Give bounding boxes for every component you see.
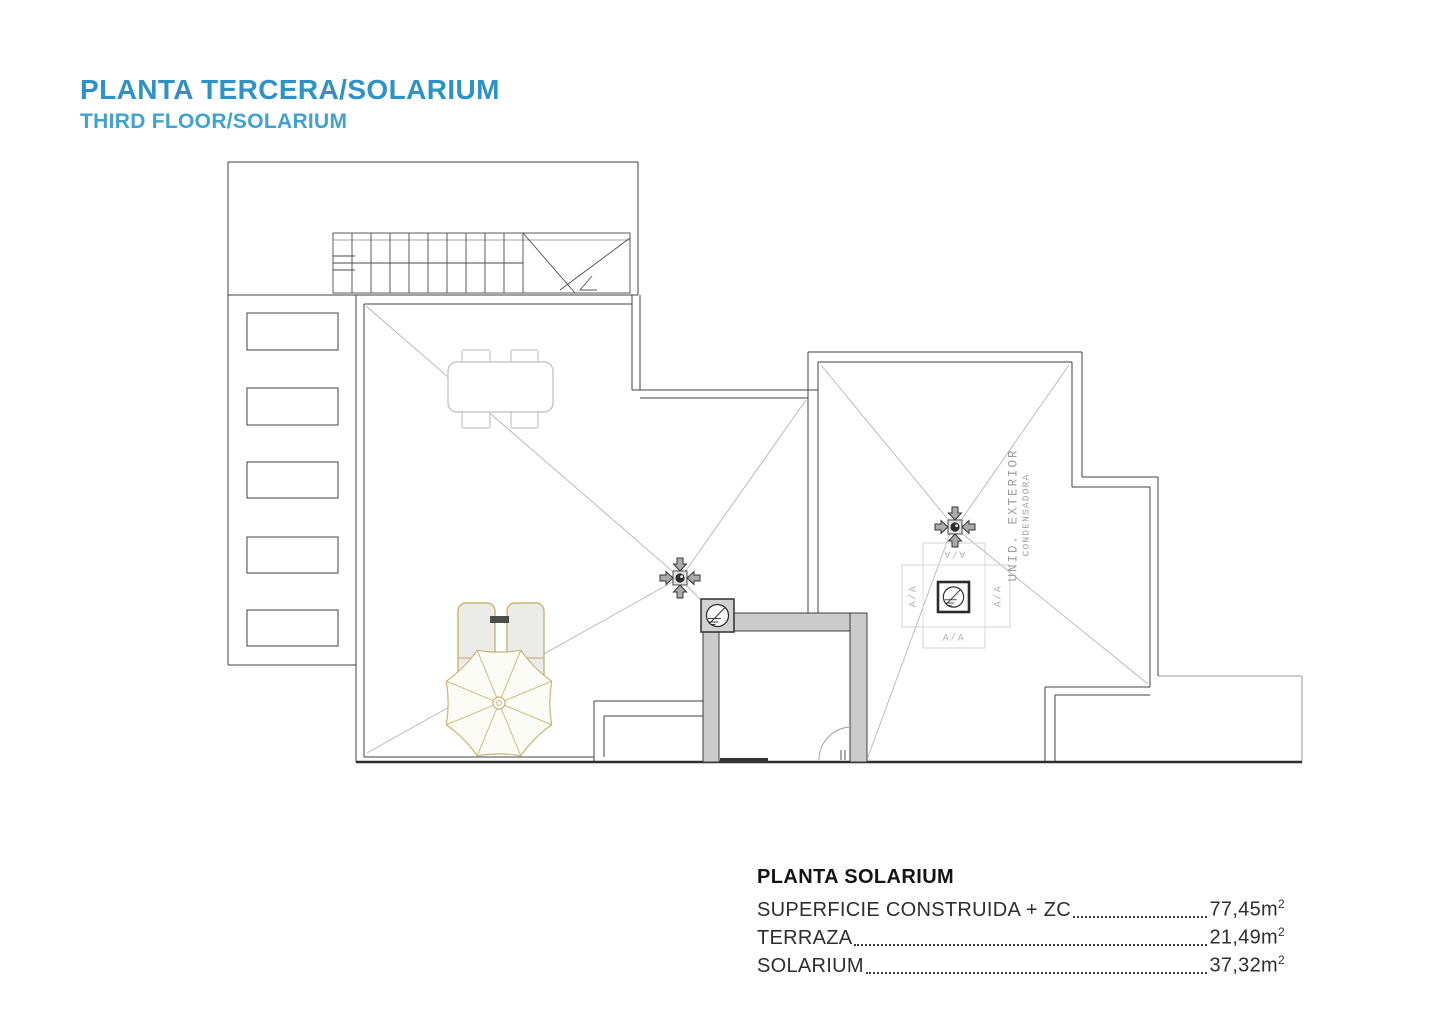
condenser-fan-icon (943, 587, 963, 607)
floor-plan-page: PLANTA TERCERA/SOLARIUM THIRD FLOOR/SOLA… (0, 0, 1440, 1024)
area-row-value: 37,32m2 (1209, 953, 1285, 978)
window-openings (247, 313, 338, 646)
window-opening (247, 388, 338, 425)
ac-condenser-unit: A/A A/A A/A A/A UNID. EXTERIOR CONDENSAD… (902, 448, 1032, 648)
dotted-leader (1073, 916, 1208, 918)
area-row: TERRAZA 21,49m2 (757, 922, 1285, 950)
dining-set (448, 350, 553, 428)
neighbor-terrace-outline (1158, 676, 1302, 762)
ac-label-right: A/A (993, 585, 1005, 608)
floor-drain-marker (660, 558, 700, 598)
area-row-label: SUPERFICIE CONSTRUIDA + ZC (757, 899, 1071, 922)
window-opening (247, 537, 338, 573)
ac-label-left: A/A (908, 585, 920, 608)
area-table: PLANTA SOLARIUM SUPERFICIE CONSTRUIDA + … (757, 866, 1285, 978)
area-row-label: SOLARIUM (757, 955, 864, 978)
elevator-shaft (701, 599, 867, 763)
lounger-side-table (490, 616, 509, 623)
area-table-heading: PLANTA SOLARIUM (757, 866, 1285, 889)
ac-label-top: A/A (943, 547, 966, 559)
dining-table (448, 362, 553, 412)
area-row-label: TERRAZA (757, 927, 852, 950)
condenser-name-line2: CONDENSADORA (1021, 474, 1032, 557)
area-row-value: 21,49m2 (1209, 925, 1285, 950)
dotted-leader (854, 944, 1207, 946)
vent-fan-icon (707, 605, 729, 627)
terrace-walls (356, 295, 818, 762)
door-swing-arc (819, 727, 852, 760)
condenser-name-line1: UNID. EXTERIOR (1006, 448, 1020, 581)
dotted-leader (866, 972, 1208, 974)
window-opening (247, 462, 338, 498)
ac-label-bottom: A/A (943, 633, 966, 645)
threshold-bar (720, 758, 768, 763)
area-row-value: 77,45m2 (1209, 897, 1285, 922)
window-opening (247, 610, 338, 646)
area-row: SUPERFICIE CONSTRUIDA + ZC 77,45m2 (757, 894, 1285, 922)
window-opening (247, 313, 338, 350)
floor-drain-marker (935, 507, 975, 547)
staircase (333, 233, 630, 293)
area-row: SOLARIUM 37,32m2 (757, 950, 1285, 978)
